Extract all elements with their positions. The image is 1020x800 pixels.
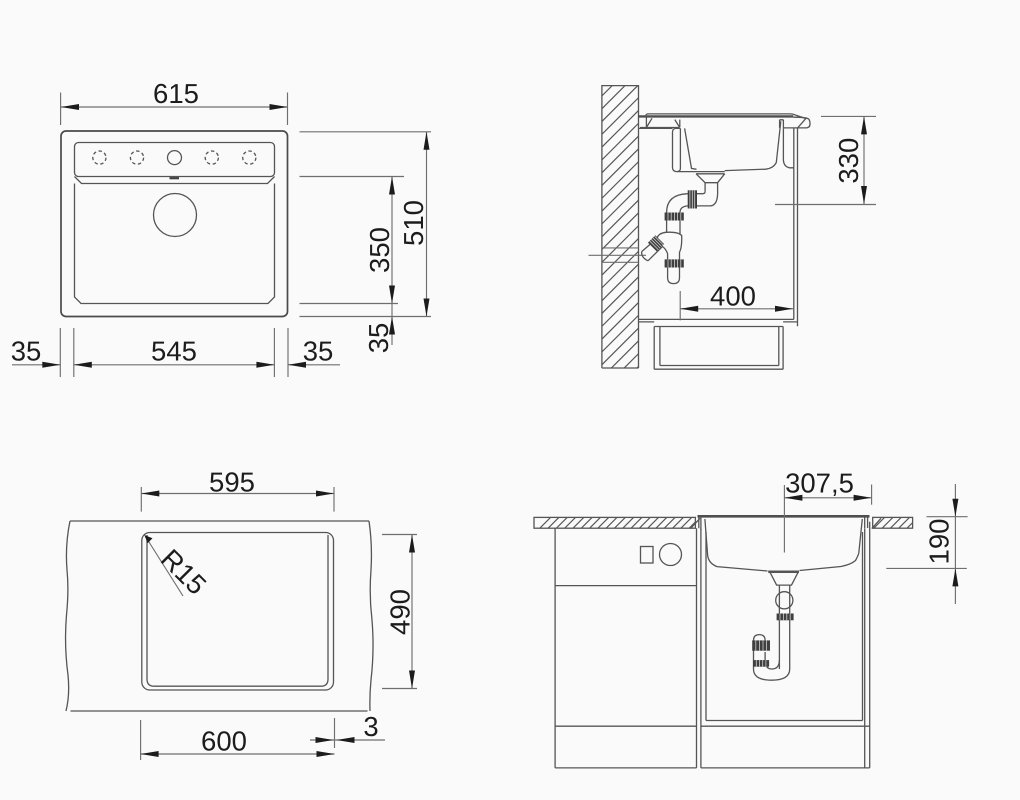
svg-text:3: 3 <box>363 711 378 742</box>
svg-text:35: 35 <box>11 336 42 367</box>
svg-text:350: 350 <box>364 227 395 273</box>
svg-text:600: 600 <box>201 726 247 757</box>
svg-text:400: 400 <box>710 281 756 312</box>
svg-text:545: 545 <box>151 336 197 367</box>
svg-text:190: 190 <box>924 519 955 565</box>
svg-text:595: 595 <box>209 467 255 498</box>
svg-text:510: 510 <box>398 200 429 246</box>
svg-text:35: 35 <box>303 336 334 367</box>
svg-text:35: 35 <box>363 323 394 354</box>
svg-text:307,5: 307,5 <box>785 468 854 499</box>
svg-text:330: 330 <box>833 138 864 184</box>
svg-text:615: 615 <box>153 78 199 109</box>
svg-text:490: 490 <box>385 589 416 635</box>
